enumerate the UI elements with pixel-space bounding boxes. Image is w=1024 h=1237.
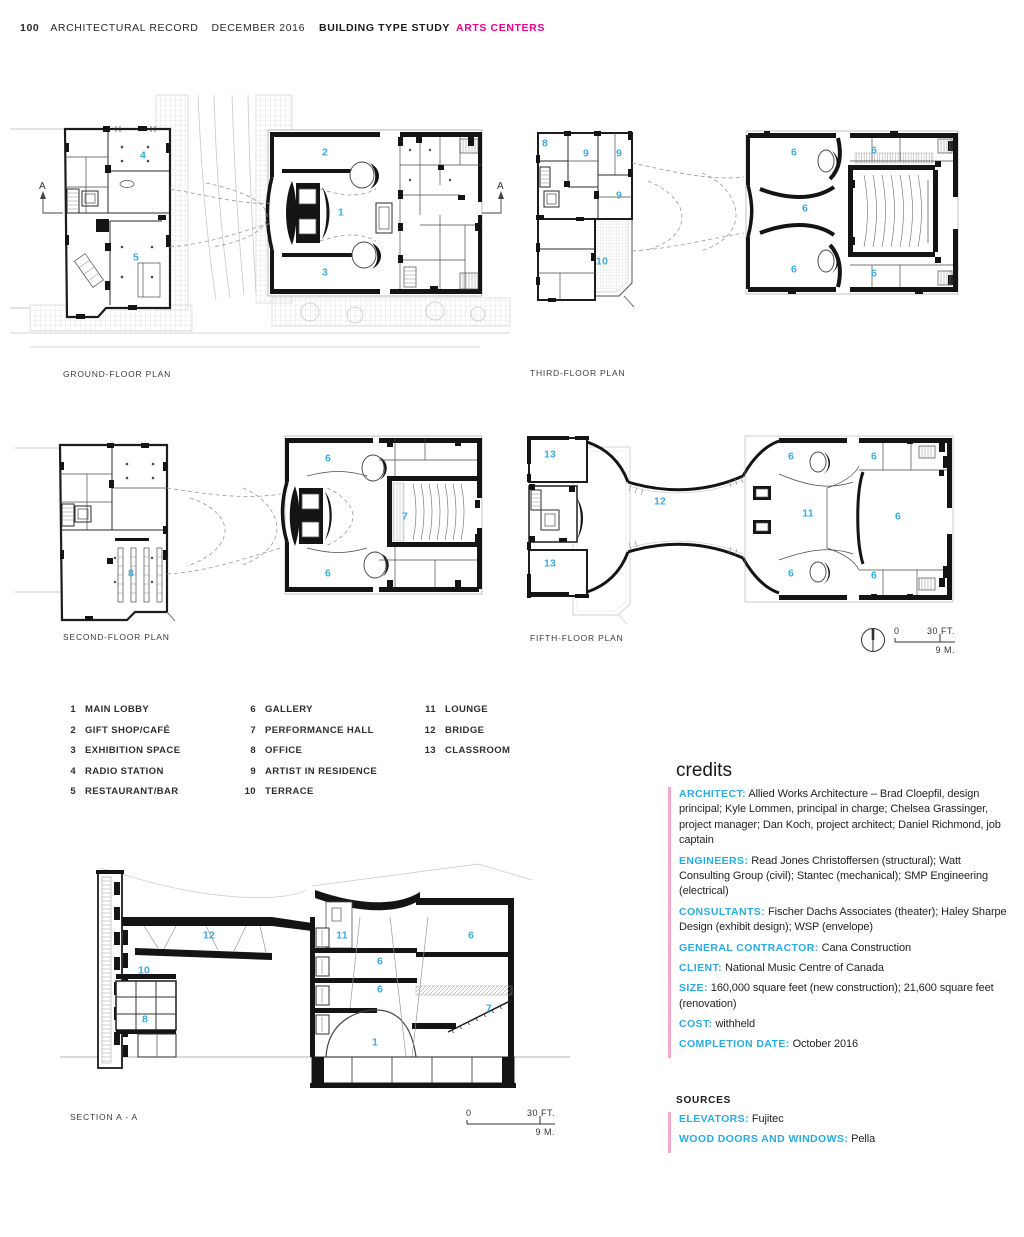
- scale-zero: 0: [466, 1108, 472, 1118]
- sources-list: ELEVATORS: FujitecWOOD DOORS AND WINDOWS…: [668, 1112, 1010, 1153]
- plan-scale-bar: 0 30 FT. 9 M.: [858, 618, 960, 658]
- scale-zero: 0: [894, 626, 900, 636]
- credit-entry: CONSULTANTS: Fischer Dachs Associates (t…: [679, 905, 1010, 936]
- study-label: BUILDING TYPE STUDY: [319, 22, 450, 34]
- topic-label: ARTS CENTERS: [456, 22, 545, 34]
- caption-section-a-a: SECTION A - A: [70, 1112, 138, 1122]
- legend-item: 7PERFORMANCE HALL: [240, 724, 377, 737]
- credit-entry: SIZE: 160,000 square feet (new construct…: [679, 981, 1010, 1012]
- legend-item: 8OFFICE: [240, 744, 377, 757]
- legend-item: 10TERRACE: [240, 785, 377, 798]
- legend-item: 9ARTIST IN RESIDENCE: [240, 765, 377, 778]
- caption-third-floor-plan: THIRD-FLOOR PLAN: [530, 368, 625, 378]
- credit-entry: COST: withheld: [679, 1017, 1010, 1032]
- credits-list: ARCHITECT: Allied Works Architecture – B…: [668, 787, 1010, 1058]
- credit-entry: CLIENT: National Music Centre of Canada: [679, 961, 1010, 976]
- credit-entry: ENGINEERS: Read Jones Christoffersen (st…: [679, 854, 1010, 900]
- north-arrow-icon: [862, 629, 885, 652]
- ground-floor-plan-drawing: A A: [10, 95, 510, 355]
- credit-entry: COMPLETION DATE: October 2016: [679, 1037, 1010, 1052]
- legend-item: 2GIFT SHOP/CAFÉ: [60, 724, 180, 737]
- fifth-floor-plan-drawing: [515, 430, 965, 615]
- caption-fifth-floor-plan: FIFTH-FLOOR PLAN: [530, 633, 624, 643]
- legend-column-1: 1MAIN LOBBY2GIFT SHOP/CAFÉ3EXHIBITION SP…: [60, 703, 180, 806]
- page-number: 100: [20, 22, 39, 34]
- legend-item: 11LOUNGE: [420, 703, 510, 716]
- caption-second-floor-plan: SECOND-FLOOR PLAN: [63, 632, 170, 642]
- caption-ground-floor-plan: GROUND-FLOOR PLAN: [63, 369, 171, 379]
- credits-heading: credits: [676, 760, 732, 782]
- legend-item: 1MAIN LOBBY: [60, 703, 180, 716]
- legend-column-3: 11LOUNGE12BRIDGE13CLASSROOM: [420, 703, 510, 765]
- legend-item: 13CLASSROOM: [420, 744, 510, 757]
- credit-entry: ELEVATORS: Fujitec: [679, 1112, 1010, 1127]
- credit-entry: GENERAL CONTRACTOR: Cana Construction: [679, 941, 1010, 956]
- legend-column-2: 6GALLERY7PERFORMANCE HALL8OFFICE9ARTIST …: [240, 703, 377, 806]
- section-scale-bar: 0 30 FT. 9 M.: [458, 1100, 560, 1140]
- legend-item: 4RADIO STATION: [60, 765, 180, 778]
- legend-item: 6GALLERY: [240, 703, 377, 716]
- sources-heading: SOURCES: [676, 1095, 731, 1106]
- scale-feet: 30 FT.: [527, 1108, 555, 1118]
- issue-date: DECEMBER 2016: [211, 22, 305, 34]
- scale-feet: 30 FT.: [927, 626, 955, 636]
- credit-entry: WOOD DOORS AND WINDOWS: Pella: [679, 1132, 1010, 1147]
- page-header: 100 ARCHITECTURAL RECORD DECEMBER 2016 B…: [20, 22, 545, 34]
- magazine-page: 100 ARCHITECTURAL RECORD DECEMBER 2016 B…: [0, 0, 1024, 1237]
- credit-entry: ARCHITECT: Allied Works Architecture – B…: [679, 787, 1010, 849]
- second-floor-plan-drawing: [15, 430, 510, 630]
- magazine-title: ARCHITECTURAL RECORD: [50, 22, 198, 34]
- section-marker-a-right: A: [497, 181, 504, 192]
- section-a-a-drawing: [60, 860, 570, 1100]
- legend-item: 5RESTAURANT/BAR: [60, 785, 180, 798]
- legend-item: 3EXHIBITION SPACE: [60, 744, 180, 757]
- legend-item: 12BRIDGE: [420, 724, 510, 737]
- scale-meters: 9 M.: [535, 1127, 555, 1137]
- section-marker-a-left: A: [39, 181, 46, 192]
- scale-meters: 9 M.: [935, 645, 955, 655]
- third-floor-plan-drawing: [520, 125, 970, 340]
